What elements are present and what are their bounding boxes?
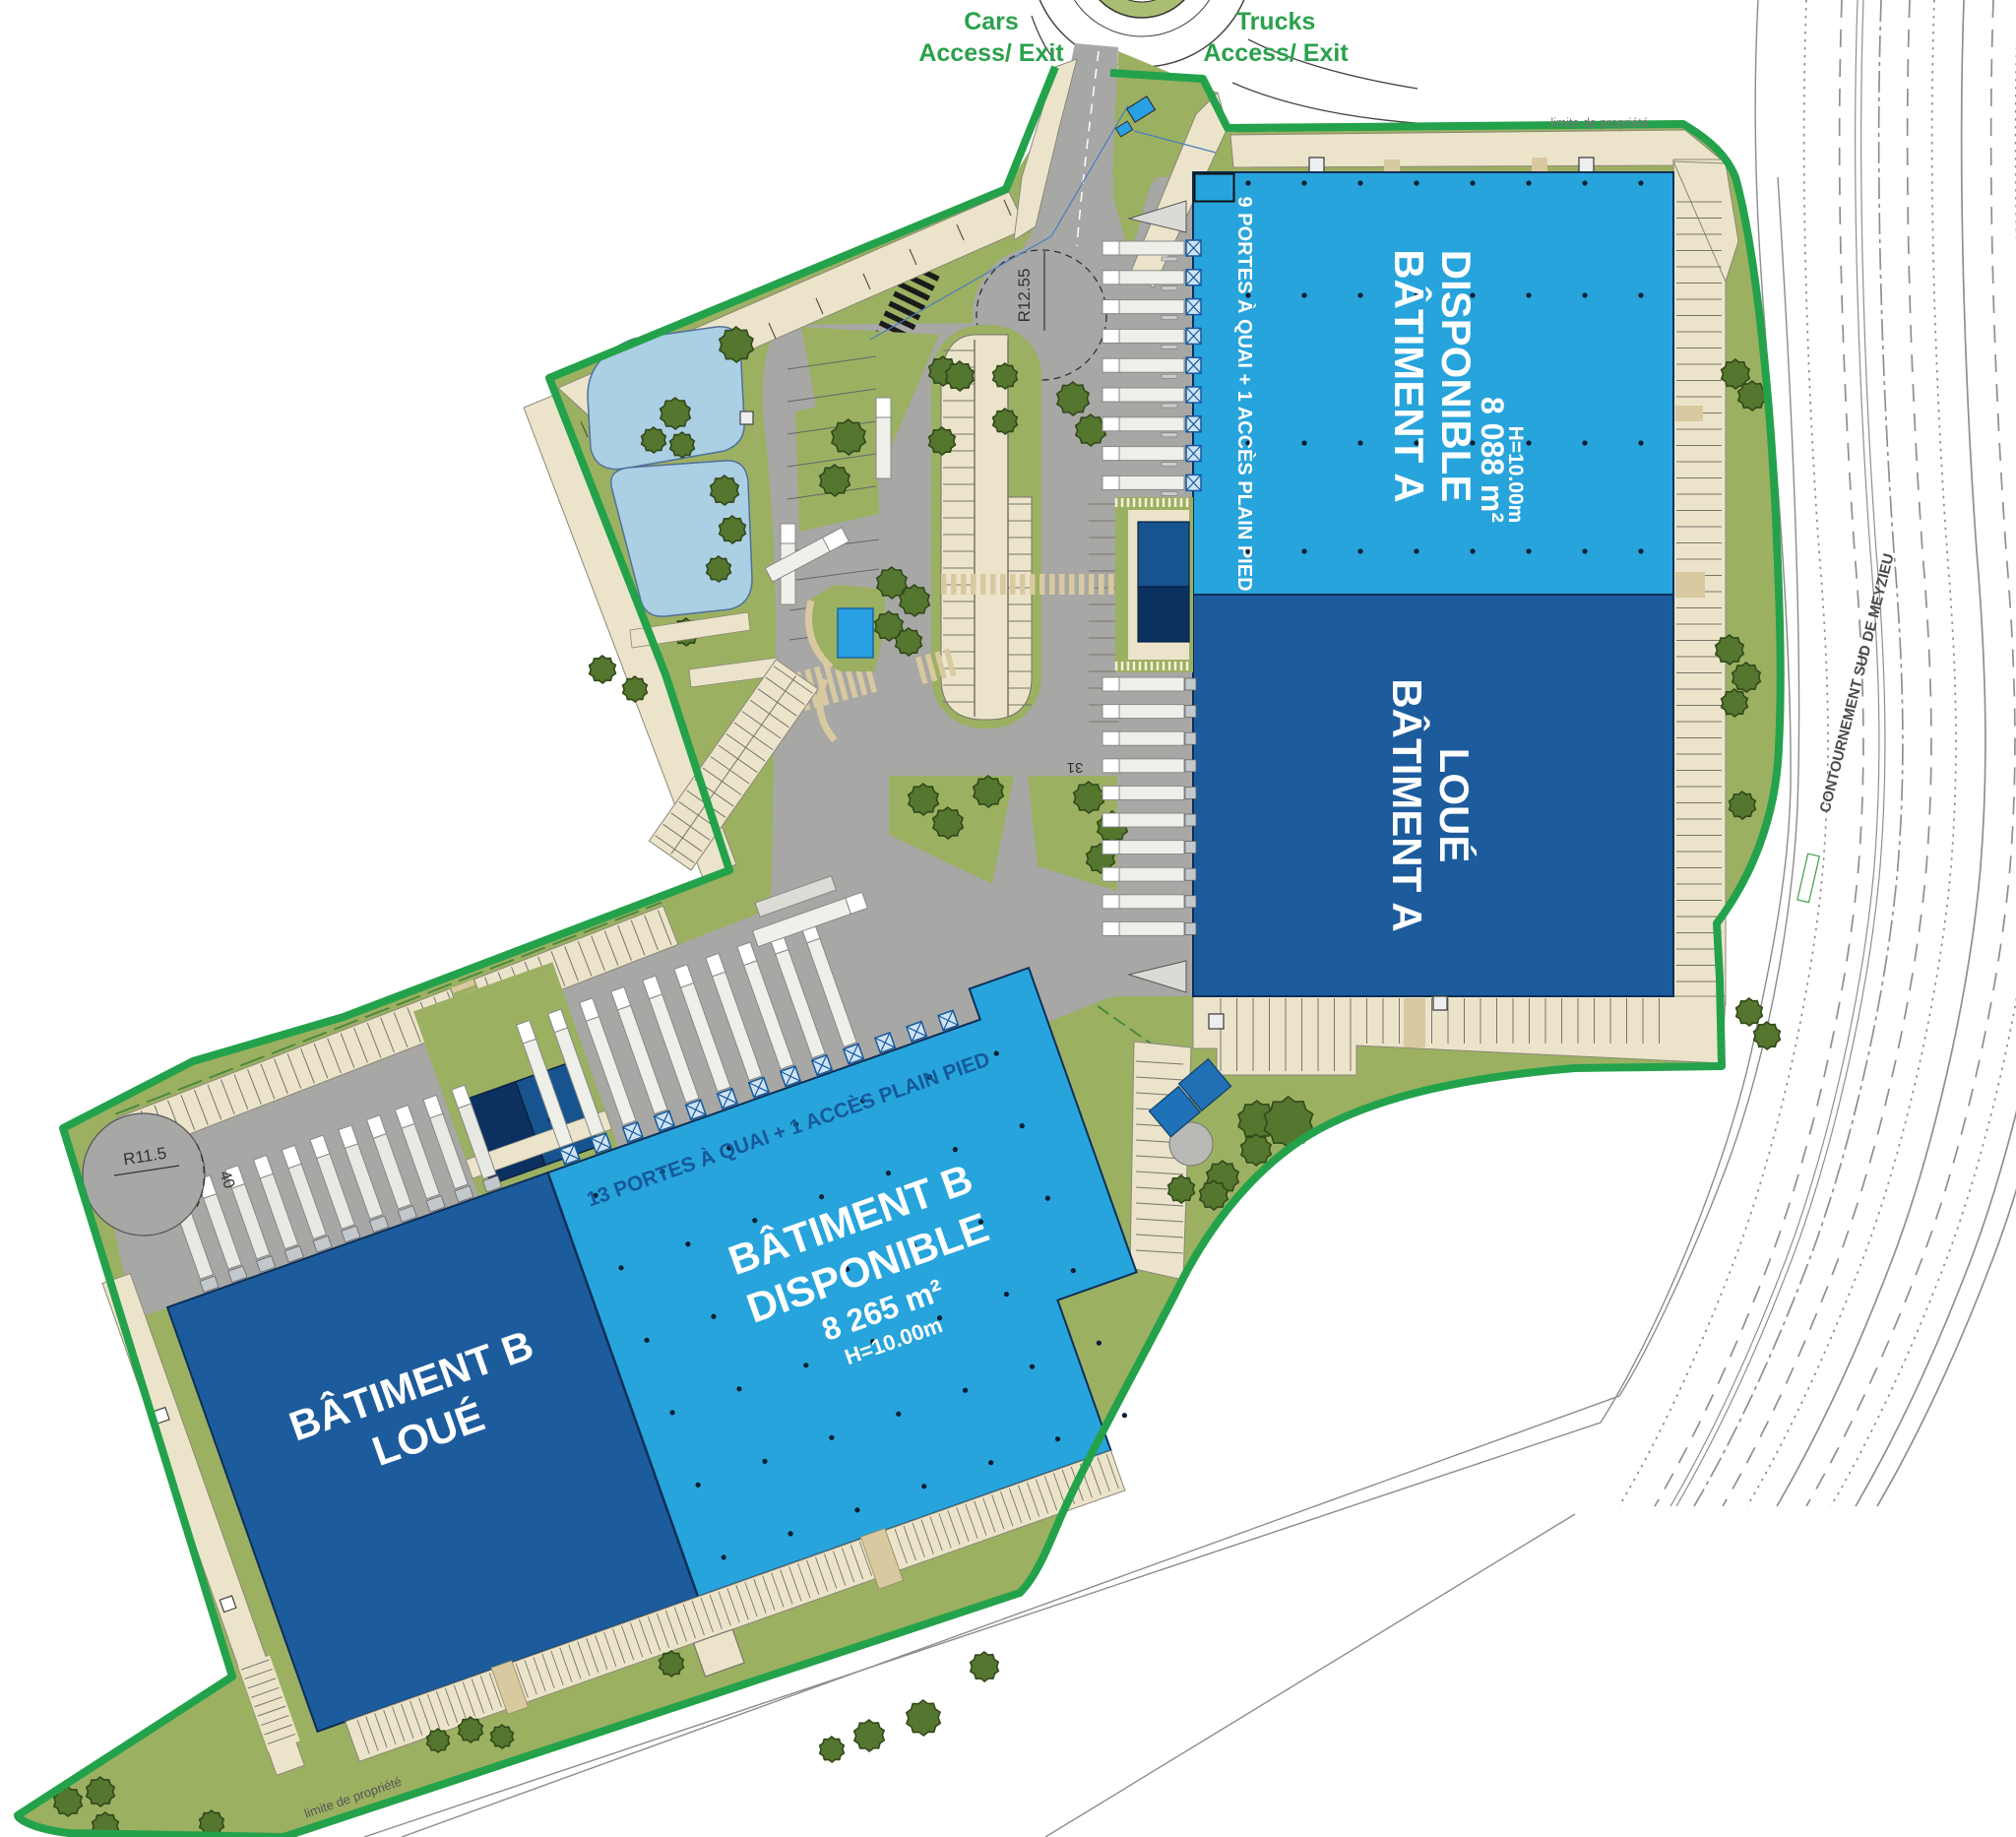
- svg-text:LOUÉ: LOUÉ: [1431, 748, 1478, 863]
- svg-text:R12.55: R12.55: [1015, 269, 1034, 323]
- svg-text:9 PORTES À QUAI + 1 ACCÈS PLAI: 9 PORTES À QUAI + 1 ACCÈS PLAIN PIED: [1233, 196, 1256, 591]
- svg-text:BÂTIMENT A: BÂTIMENT A: [1386, 249, 1433, 502]
- svg-text:DISPONIBLE: DISPONIBLE: [1433, 250, 1480, 503]
- svg-text:limite de propriété: limite de propriété: [1550, 116, 1648, 130]
- svg-text:BÂTIMENT A: BÂTIMENT A: [1384, 678, 1431, 931]
- svg-text:Cars: Cars: [964, 8, 1019, 35]
- svg-text:Access/ Exit: Access/ Exit: [1203, 39, 1349, 67]
- svg-text:H=10.00m: H=10.00m: [1504, 426, 1527, 524]
- svg-text:31: 31: [1067, 759, 1084, 776]
- svg-text:Trucks: Trucks: [1236, 8, 1316, 35]
- svg-text:Access/ Exit: Access/ Exit: [918, 39, 1064, 67]
